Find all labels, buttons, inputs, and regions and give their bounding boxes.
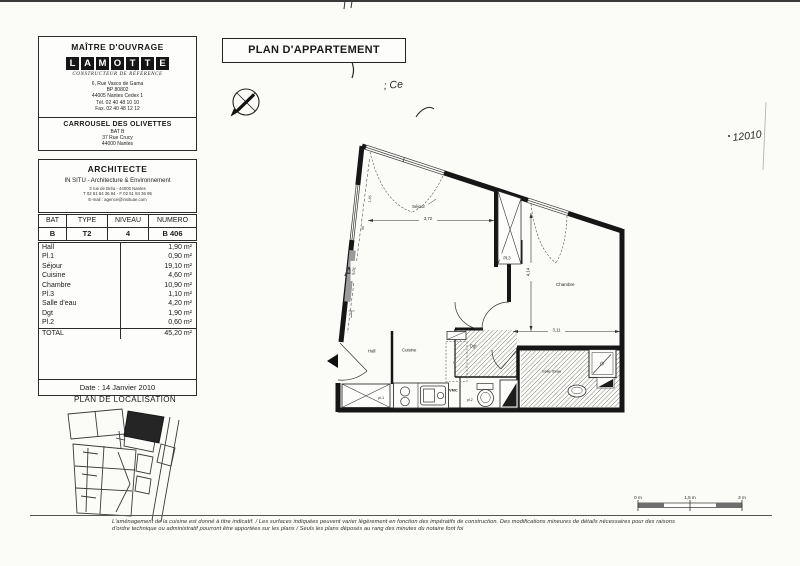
handwritten-note: ; Ce <box>383 78 403 92</box>
footer-disclaimer: L'aménagement de la cuisine est donné à … <box>112 519 780 532</box>
footer-divider <box>30 515 772 516</box>
scanned-plan-sheet: MAÎTRE D'OUVRAGE L A M O T T E CONSTRUCT… <box>0 0 800 566</box>
handwritten-number: 12010 <box>732 128 763 143</box>
scan-annotations: ; Ce 12010 <box>0 0 800 566</box>
footer-line1: L'aménagement de la cuisine est donné à … <box>112 519 780 526</box>
footer-line2: d'ordre technique ou administratif pourr… <box>112 526 780 533</box>
